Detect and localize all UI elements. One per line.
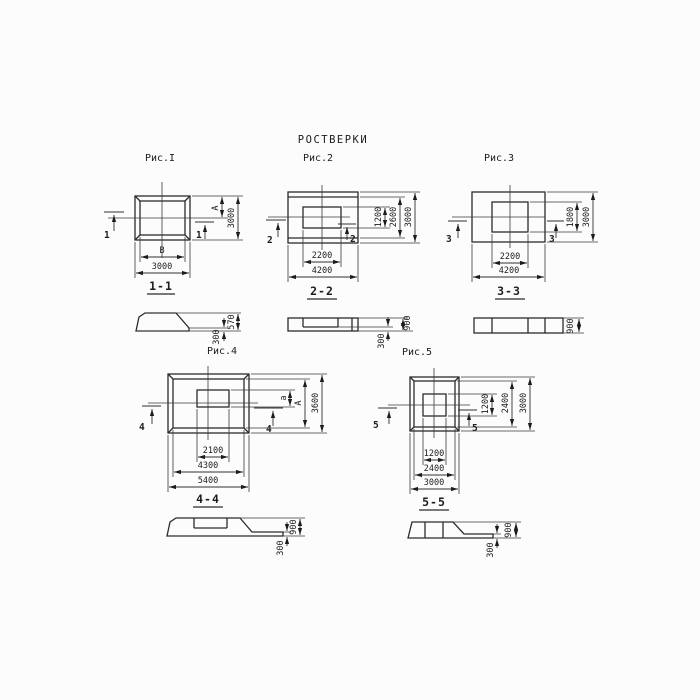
- fig4-cut-number: 4: [139, 422, 145, 433]
- fig3-cut-number: 3: [446, 234, 452, 245]
- fig1-dim-outer-width: 3000: [152, 262, 172, 272]
- technical-drawing-sheet: РОСТВЕРКИ Рис.I 1 1 А 3000 В 3000 1-1: [0, 0, 700, 700]
- section4-dim-ledge: 300: [276, 540, 286, 555]
- section2-dim-ledge: 300: [377, 333, 387, 348]
- fig3-cut-number: 3: [549, 234, 555, 245]
- fig5-dim-inner-width: 1200: [424, 449, 444, 459]
- fig4-dim-inner-width: 2100: [203, 446, 223, 456]
- fig2-dim-outer-width: 4200: [312, 266, 332, 276]
- fig4-dim-mid-width: 4300: [198, 461, 218, 471]
- fig5-dim-outer-height: 3000: [519, 393, 529, 413]
- fig2-dim-inner-height: 1200: [374, 207, 384, 227]
- fig5-plan: Рис.5 5 5 1200 2400 3000 1200 2400 3000 …: [373, 347, 535, 510]
- fig1-cut-mark-left: 1: [104, 212, 124, 241]
- fig2-label: Рис.2: [303, 153, 333, 164]
- fig4-section-label: 4-4: [196, 492, 220, 506]
- fig1-cut-number: 1: [104, 230, 110, 241]
- section5-dim-total: 900: [504, 522, 514, 537]
- fig3-label: Рис.3: [484, 153, 514, 164]
- fig5-cut-number: 5: [472, 423, 478, 434]
- fig2-dim-inner-width: 2200: [312, 251, 332, 261]
- section1-dim-total: 570: [227, 314, 237, 329]
- fig5-dim-inner-height: 1200: [481, 394, 491, 414]
- fig2-cut-number: 2: [267, 235, 273, 246]
- section5-dim-ledge: 300: [486, 542, 496, 557]
- section4-dim-total: 900: [289, 519, 299, 534]
- fig2-section-label: 2-2: [310, 284, 334, 298]
- fig3-dim-outer-height: 3000: [582, 207, 592, 227]
- fig3-cut-mark-right: 3: [547, 221, 564, 245]
- fig2-cut-number: 2: [350, 234, 356, 245]
- fig3-dim-inner-width: 2200: [500, 252, 520, 262]
- fig4-dim-outer-height: 3600: [311, 393, 321, 413]
- fig1-section-label: 1-1: [149, 279, 173, 293]
- section-4-4-view: 300 900: [167, 518, 305, 556]
- drawing-canvas: РОСТВЕРКИ Рис.I 1 1 А 3000 В 3000 1-1: [0, 0, 700, 700]
- section2-dim-total: 900: [403, 315, 413, 330]
- fig1-cut-number: 1: [196, 230, 202, 241]
- section-3-3-view: 900: [474, 318, 584, 334]
- fig4-dim-outer-width: 5400: [198, 476, 218, 486]
- fig5-section-label: 5-5: [422, 495, 446, 509]
- section-2-2-view: 300 900: [288, 315, 413, 348]
- fig1-plan: Рис.I 1 1 А 3000 В 3000 1-1: [104, 153, 243, 294]
- fig5-cut-number: 5: [373, 420, 379, 431]
- fig2-dim-outer-height: 3000: [404, 207, 414, 227]
- fig5-label: Рис.5: [402, 347, 432, 358]
- fig5-dim-outer-width: 3000: [424, 478, 444, 488]
- fig1-dim-inner-height: А: [211, 205, 221, 210]
- fig2-plan: Рис.2 2 2 1200 2600 3000 2200 4200 2-2: [266, 153, 420, 299]
- fig4-dim-inner-height: а: [279, 395, 289, 400]
- section-5-5-view: 300 900: [408, 522, 521, 558]
- fig3-dim-inner-height: 1800: [566, 207, 576, 227]
- fig2-cut-mark-left: 2: [266, 220, 286, 246]
- fig1-dim-inner-width: В: [159, 246, 164, 256]
- fig3-dim-outer-width: 4200: [499, 266, 519, 276]
- section3-dim-total: 900: [566, 318, 576, 333]
- section1-dim-ledge: 300: [212, 329, 222, 344]
- section-1-1-view: 300 570: [136, 313, 241, 345]
- fig4-cut-mark-left: 4: [139, 406, 161, 433]
- fig4-cut-mark-right: 4: [254, 408, 283, 435]
- sheet-title: РОСТВЕРКИ: [298, 134, 368, 146]
- fig2-dim-mid-height: 2600: [389, 207, 399, 227]
- fig4-label: Рис.4: [207, 346, 237, 357]
- fig5-cut-mark-left: 5: [373, 408, 397, 431]
- fig5-cut-mark-right: 5: [458, 410, 478, 434]
- fig3-plan: Рис.3 3 3 1800 3000 2200 4200 3-3: [446, 153, 598, 299]
- fig3-cut-mark-left: 3: [446, 221, 467, 245]
- fig1-label: Рис.I: [145, 153, 175, 164]
- fig5-dim-mid-width: 2400: [424, 464, 444, 474]
- fig4-dim-mid-height: А: [294, 400, 304, 405]
- fig4-plan: Рис.4 4 4 а А 3600 2100 4300 5400 4-4: [139, 346, 327, 507]
- fig5-dim-mid-height: 2400: [501, 393, 511, 413]
- fig1-dim-outer-height: 3000: [227, 208, 237, 228]
- fig1-cut-mark-right: 1: [195, 222, 214, 241]
- fig3-section-label: 3-3: [497, 284, 521, 298]
